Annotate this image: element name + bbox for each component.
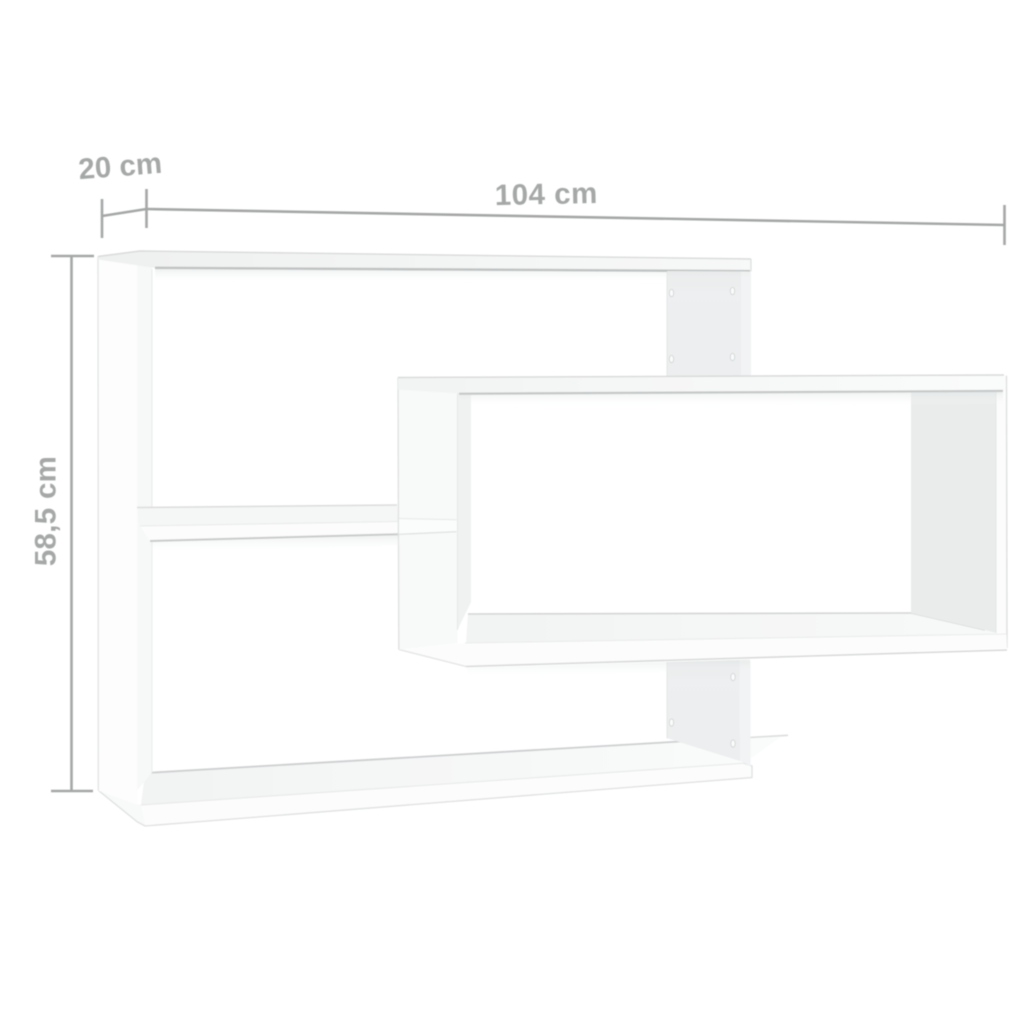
svg-text:104 cm: 104 cm (494, 177, 598, 212)
svg-text:20 cm: 20 cm (77, 147, 163, 186)
svg-text:58,5 cm: 58,5 cm (29, 456, 62, 566)
